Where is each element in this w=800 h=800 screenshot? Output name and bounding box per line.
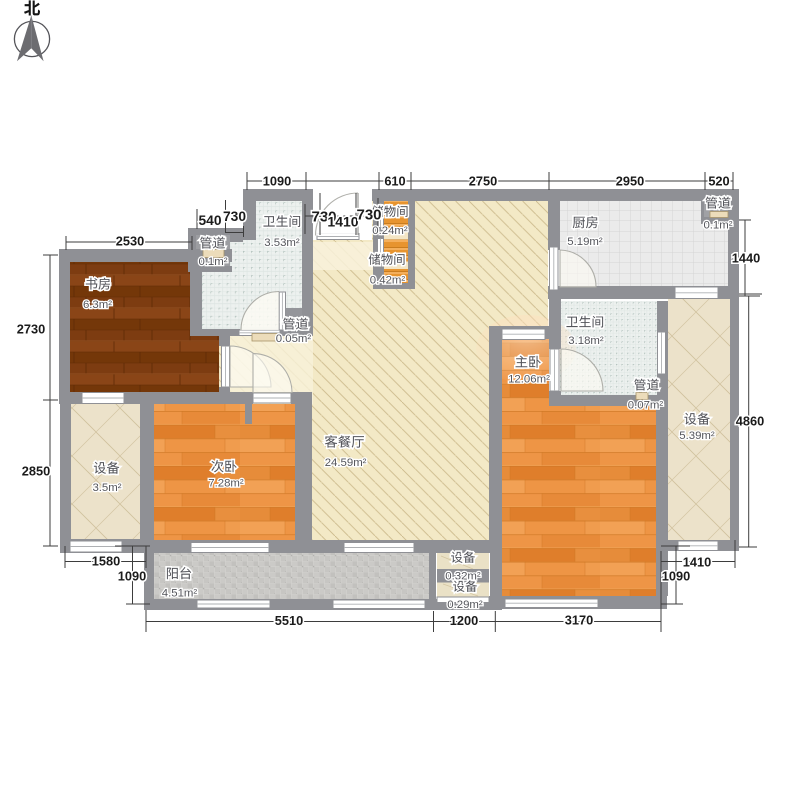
svg-text:0.1m²: 0.1m² <box>198 256 227 268</box>
svg-text:3.5m²: 3.5m² <box>92 482 121 494</box>
svg-text:3.18m²: 3.18m² <box>568 335 604 347</box>
svg-text:1090: 1090 <box>118 569 146 584</box>
svg-text:3170: 3170 <box>565 613 593 628</box>
svg-text:1440: 1440 <box>732 251 760 266</box>
svg-text:4.51m²: 4.51m² <box>162 588 198 600</box>
svg-text:5510: 5510 <box>275 613 303 628</box>
svg-text:1580: 1580 <box>92 554 120 569</box>
svg-text:2950: 2950 <box>616 174 644 189</box>
svg-text:0.42m²: 0.42m² <box>370 275 406 287</box>
svg-text:610: 610 <box>384 174 405 189</box>
svg-text:5.39m²: 5.39m² <box>679 430 715 442</box>
svg-text:6.3m²: 6.3m² <box>83 299 112 311</box>
svg-text:730: 730 <box>356 206 381 223</box>
svg-text:24.59m²: 24.59m² <box>325 457 367 469</box>
svg-text:3.53m²: 3.53m² <box>264 237 300 249</box>
svg-text:540: 540 <box>198 213 221 228</box>
svg-text:730: 730 <box>223 209 246 224</box>
svg-text:12.06m²: 12.06m² <box>508 374 550 386</box>
svg-text:1200: 1200 <box>450 613 478 628</box>
svg-text:1410: 1410 <box>683 555 711 570</box>
svg-text:1410: 1410 <box>327 214 358 230</box>
svg-text:1090: 1090 <box>662 569 690 584</box>
svg-text:0.1m²: 0.1m² <box>703 220 732 232</box>
svg-text:0.05m²: 0.05m² <box>276 333 312 345</box>
svg-text:0.24m²: 0.24m² <box>372 225 408 237</box>
svg-text:520: 520 <box>708 174 729 189</box>
svg-text:0.29m²: 0.29m² <box>447 599 483 611</box>
svg-text:5.19m²: 5.19m² <box>567 236 603 248</box>
svg-text:2530: 2530 <box>116 234 144 249</box>
svg-text:2750: 2750 <box>469 174 497 189</box>
svg-text:2850: 2850 <box>22 464 50 479</box>
svg-text:7.28m²: 7.28m² <box>208 478 244 490</box>
svg-text:4860: 4860 <box>736 414 764 429</box>
svg-text:2730: 2730 <box>17 322 45 337</box>
svg-text:1090: 1090 <box>263 174 291 189</box>
svg-text:0.07m²: 0.07m² <box>628 400 664 412</box>
